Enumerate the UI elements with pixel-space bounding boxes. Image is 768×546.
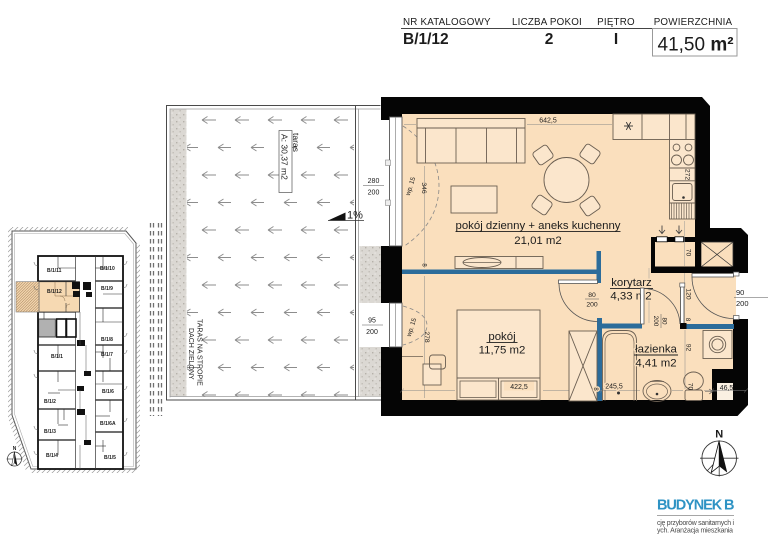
svg-text:70: 70 (687, 383, 694, 391)
svg-text:95: 95 (368, 318, 376, 325)
svg-text:200: 200 (368, 190, 380, 197)
svg-text:346: 346 (420, 182, 427, 194)
svg-text:80: 80 (588, 292, 596, 299)
svg-text:4,41 m2: 4,41 m2 (635, 357, 676, 369)
svg-text:B/1/8: B/1/8 (101, 337, 113, 343)
svg-text:BUDYNEK B: BUDYNEK B (657, 498, 735, 514)
svg-text:taras: taras (291, 133, 301, 152)
svg-text:46,5: 46,5 (720, 385, 734, 392)
svg-text:B/1/6: B/1/6 (102, 389, 114, 395)
svg-text:A: 30,37 m2: A: 30,37 m2 (280, 134, 290, 180)
svg-text:278: 278 (423, 331, 430, 343)
svg-text:NR KATALOGOWY: NR KATALOGOWY (403, 17, 491, 28)
svg-text:cję przyborów sanitarnych i: cję przyborów sanitarnych i (657, 520, 734, 527)
svg-text:272: 272 (684, 169, 691, 181)
svg-text:pokój dzienny + aneks kuchenny: pokój dzienny + aneks kuchenny (456, 220, 621, 232)
svg-text:642,5: 642,5 (539, 118, 557, 125)
svg-text:B/1/4: B/1/4 (46, 453, 58, 459)
svg-text:N: N (13, 446, 17, 452)
svg-text:B/1/12: B/1/12 (403, 31, 449, 48)
svg-text:11,75 m2: 11,75 m2 (479, 345, 526, 357)
svg-text:4,33 m2: 4,33 m2 (610, 290, 651, 302)
svg-text:245,5: 245,5 (605, 384, 623, 391)
svg-text:N: N (715, 429, 723, 441)
svg-text:pokój: pokój (488, 331, 515, 343)
svg-text:korytarz: korytarz (611, 277, 652, 289)
svg-text:B/1/7: B/1/7 (101, 352, 113, 358)
svg-text:2: 2 (545, 31, 554, 48)
svg-text:B/1/2: B/1/2 (44, 399, 56, 405)
svg-text:80: 80 (661, 317, 668, 325)
svg-text:200: 200 (736, 299, 749, 308)
svg-text:90: 90 (736, 288, 744, 297)
svg-text:21,01 m2: 21,01 m2 (514, 235, 562, 247)
svg-text:422,5: 422,5 (510, 384, 528, 391)
svg-text:TARAS NA STROPIE: TARAS NA STROPIE (196, 319, 203, 386)
svg-text:łazienka: łazienka (635, 343, 677, 355)
svg-text:LICZBA POKOI: LICZBA POKOI (512, 17, 582, 28)
svg-text:1%: 1% (347, 210, 363, 222)
svg-text:B/1/5: B/1/5 (104, 455, 116, 461)
svg-text:ych. Aranżacja mieszkania: ych. Aranżacja mieszkania (657, 528, 733, 535)
svg-text:B/1/10: B/1/10 (100, 266, 115, 272)
svg-text:200: 200 (586, 302, 598, 309)
svg-text:DACH ZIELONY: DACH ZIELONY (187, 328, 194, 380)
svg-text:B/1/12: B/1/12 (47, 289, 62, 295)
svg-text:41,50 m²: 41,50 m² (658, 35, 734, 56)
svg-text:B/1/6A: B/1/6A (100, 421, 116, 427)
svg-text:200: 200 (366, 329, 378, 336)
svg-text:POWIERZCHNIA: POWIERZCHNIA (654, 17, 733, 28)
svg-text:92: 92 (685, 344, 692, 352)
svg-text:PIĘTRO: PIĘTRO (597, 17, 635, 28)
svg-text:280: 280 (368, 178, 380, 185)
svg-text:70: 70 (685, 249, 692, 257)
svg-text:B/1/3: B/1/3 (44, 429, 56, 435)
svg-text:B/1/1: B/1/1 (51, 354, 63, 360)
svg-text:I: I (614, 31, 618, 48)
svg-text:B/1/9: B/1/9 (101, 286, 113, 292)
svg-text:120: 120 (685, 288, 692, 300)
svg-text:200: 200 (652, 316, 659, 327)
svg-text:B/1/11: B/1/11 (47, 268, 62, 274)
